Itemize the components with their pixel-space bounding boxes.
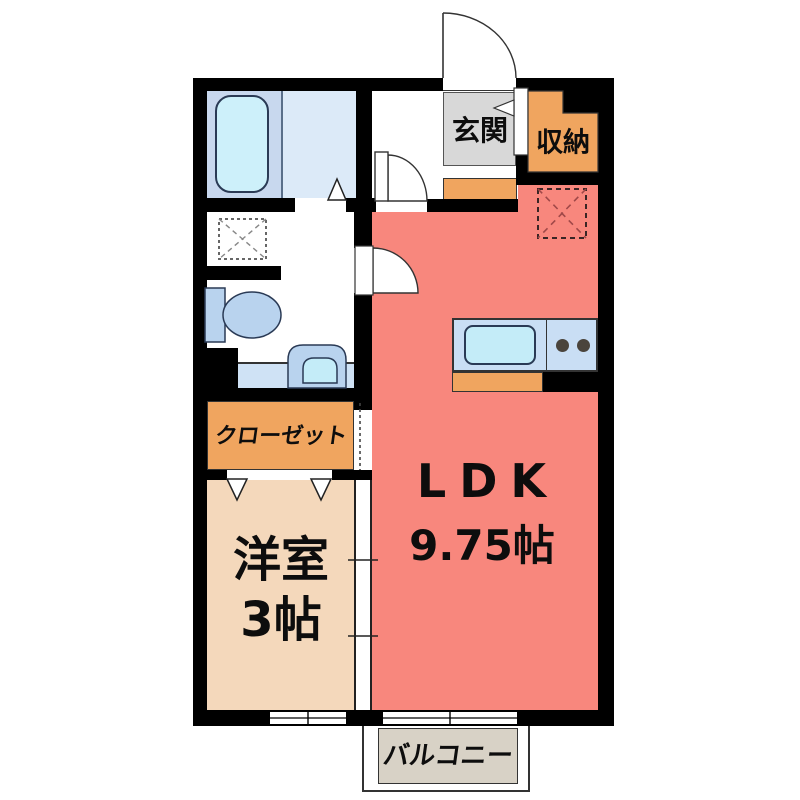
genkan-label: 玄関 [452,117,508,145]
ldk-label: LDK [417,458,559,504]
floor-plan: 玄関 収納 クローゼット 洋室 3帖 LDK 9.75帖 バルコニー [0,0,800,800]
storage-label: 収納 [536,130,590,157]
balcony-label: バルコニー [381,743,514,769]
western-room-label: 洋室 [233,536,329,584]
storage-shape-layer [0,0,800,800]
western-room-size: 3帖 [240,596,321,644]
ldk-size: 9.75帖 [409,525,555,567]
closet-label: クローゼット [213,426,348,448]
